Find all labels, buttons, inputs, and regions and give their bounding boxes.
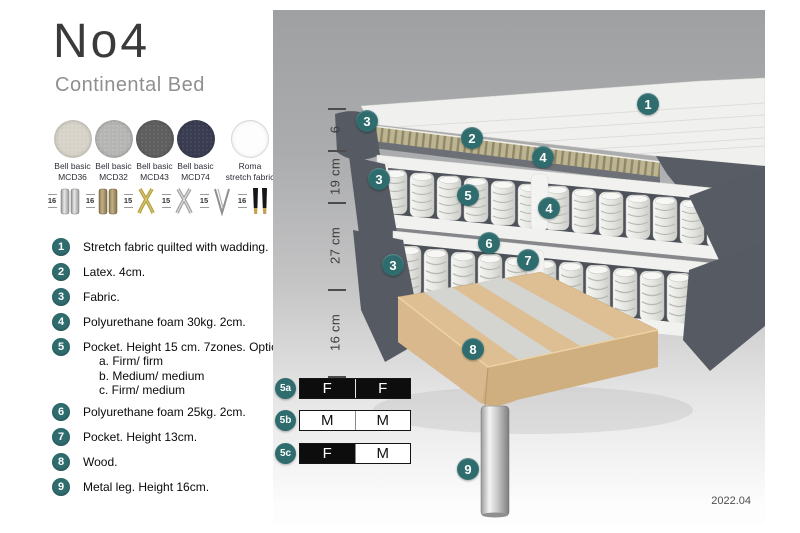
- pocket-options: a. Firm/ firm b. Medium/ medium c. Firm/…: [99, 354, 267, 398]
- list-item: 6Polyurethane foam 25kg. 2cm.: [52, 403, 267, 421]
- callout-badge: 2: [461, 127, 483, 149]
- leg-hairpin-icon: [211, 186, 233, 216]
- leg-cylinder-brass-icon: [97, 186, 119, 216]
- firmness-cell: F: [355, 379, 411, 398]
- item-text: Latex. 4cm.: [83, 263, 145, 281]
- leg-height-value: 16: [238, 197, 246, 205]
- leg-option: 16: [236, 186, 271, 216]
- swatch-code: MCD36: [58, 172, 87, 182]
- callout-badge: 3: [356, 110, 378, 132]
- fabric-swatch: Bell basicMCD36: [52, 120, 93, 182]
- item-number-badge: 6: [52, 403, 70, 421]
- callout-badge: 5: [457, 184, 479, 206]
- pocket-option: a. Firm/ firm: [99, 354, 267, 369]
- callout-badge: 4: [538, 197, 560, 219]
- page-title: No4: [53, 14, 150, 69]
- fabric-swatch-label: Bell basicMCD43: [134, 161, 175, 182]
- callout-badge: 4: [532, 146, 554, 168]
- info-column: No4 Continental Bed Bell basicMCD36 Bell…: [0, 0, 273, 533]
- swatch-code: MCD43: [140, 172, 169, 182]
- page: No4 Continental Bed Bell basicMCD36 Bell…: [0, 0, 800, 533]
- list-item: 1Stretch fabric quilted with wadding.: [52, 238, 267, 256]
- callout-badge: 3: [368, 168, 390, 190]
- leg-option: 16: [46, 186, 81, 216]
- firmness-cell: M: [355, 444, 411, 463]
- item-number-badge: 1: [52, 238, 70, 256]
- fabric-swatch: Romastretch fabric: [222, 120, 278, 182]
- swatch-code: MCD74: [181, 172, 210, 182]
- leg-option: 16: [84, 186, 119, 216]
- leg-height-value: 15: [200, 197, 208, 205]
- item-number-badge: 4: [52, 313, 70, 331]
- item-text: Polyurethane foam 25kg. 2cm.: [83, 403, 246, 421]
- leg-option: 15: [122, 186, 157, 216]
- diagram-panel: 6 19 cm 27 cm 16 cm 1 2 3 4 3 5 4 6 7 3 …: [273, 10, 765, 523]
- fabric-swatch-circle: [54, 120, 92, 158]
- measurement-label: 6: [328, 108, 343, 152]
- item-text: Pocket. Height 13cm.: [83, 428, 197, 446]
- fabric-swatch-label: Bell basicMCD32: [93, 161, 134, 182]
- fabric-swatch-circle: [95, 120, 133, 158]
- leg-height: 15: [160, 192, 172, 210]
- fabric-swatch: Bell basicMCD74: [175, 120, 216, 182]
- callout-badge: 6: [478, 232, 500, 254]
- list-item: 7Pocket. Height 13cm.: [52, 428, 267, 446]
- firmness-row: 5b M M: [275, 409, 411, 431]
- swatch-code: MCD32: [99, 172, 128, 182]
- callout-badge: 7: [517, 249, 539, 271]
- firmness-cell: M: [300, 411, 355, 430]
- measurement-tick: [328, 202, 346, 204]
- leg-black-gold-icon: [249, 186, 271, 216]
- list-item: 8Wood.: [52, 453, 267, 471]
- firmness-row-badge: 5a: [275, 378, 296, 399]
- callout-badge: 1: [637, 93, 659, 115]
- item-text: Wood.: [83, 453, 117, 471]
- fabric-swatch-label: Bell basicMCD74: [175, 161, 216, 182]
- fabric-swatch: Bell basicMCD43: [134, 120, 175, 182]
- firmness-bar: M M: [299, 410, 411, 431]
- page-subtitle: Continental Bed: [55, 74, 205, 97]
- firmness-bar: F F: [299, 378, 411, 399]
- leg-height-value: 15: [124, 197, 132, 205]
- item-text: Stretch fabric quilted with wadding.: [83, 238, 268, 256]
- firmness-row: 5a F F: [275, 377, 411, 399]
- firmness-row-badge: 5b: [275, 410, 296, 431]
- fabric-swatch-circle: [136, 120, 174, 158]
- leg-height: 16: [236, 192, 248, 210]
- item-number-badge: 3: [52, 288, 70, 306]
- list-item: 9Metal leg. Height 16cm.: [52, 478, 267, 496]
- leg-cross-gold-icon: [135, 186, 157, 216]
- fabric-swatches: Bell basicMCD36 Bell basicMCD32 Bell bas…: [52, 120, 278, 182]
- swatch-code: stretch fabric: [226, 172, 275, 182]
- item-number-badge: 7: [52, 428, 70, 446]
- item-text: Fabric.: [83, 288, 120, 306]
- fabric-swatch-circle: [231, 120, 269, 158]
- list-item: 3Fabric.: [52, 288, 267, 306]
- swatch-name: Bell basic: [95, 161, 131, 171]
- item-number-badge: 2: [52, 263, 70, 281]
- fabric-swatch-circle: [177, 120, 215, 158]
- leg-options: 16 16 15: [46, 186, 274, 216]
- parts-list: 1Stretch fabric quilted with wadding. 2L…: [52, 238, 267, 503]
- item-number-badge: 5: [52, 338, 70, 356]
- firmness-row-badge: 5c: [275, 443, 296, 464]
- callout-badge: 3: [382, 254, 404, 276]
- measurement-tick: [328, 289, 346, 291]
- leg-height: 16: [46, 192, 58, 210]
- swatch-name: Bell basic: [54, 161, 90, 171]
- fabric-swatch-label: Romastretch fabric: [222, 161, 278, 182]
- item-text: Polyurethane foam 30kg. 2cm.: [83, 313, 246, 331]
- callout-badge: 9: [457, 458, 479, 480]
- firmness-cell: F: [300, 379, 355, 398]
- item-number-badge: 9: [52, 478, 70, 496]
- pocket-option: b. Medium/ medium: [99, 369, 267, 384]
- measurement-label: 16 cm: [328, 311, 343, 355]
- fabric-swatch-label: Bell basicMCD36: [52, 161, 93, 182]
- swatch-name: Bell basic: [177, 161, 213, 171]
- callout-badge: 8: [462, 338, 484, 360]
- item-text: Metal leg. Height 16cm.: [83, 478, 209, 496]
- metal-leg: [481, 406, 509, 518]
- measurement-label: 27 cm: [328, 224, 343, 268]
- leg-cylinder-silver-icon: [59, 186, 81, 216]
- leg-height-value: 16: [86, 197, 94, 205]
- firmness-cell: F: [300, 444, 355, 463]
- leg-height: 15: [198, 192, 210, 210]
- list-item: 4Polyurethane foam 30kg. 2cm.: [52, 313, 267, 331]
- pocket-option: c. Firm/ medium: [99, 383, 267, 398]
- item-number-badge: 8: [52, 453, 70, 471]
- leg-cross-silver-icon: [173, 186, 195, 216]
- measurement-label: 19 cm: [328, 155, 343, 199]
- firmness-row: 5c F M: [275, 442, 411, 464]
- swatch-name: Bell basic: [136, 161, 172, 171]
- firmness-bar: F M: [299, 443, 411, 464]
- list-item: 2Latex. 4cm.: [52, 263, 267, 281]
- swatch-name: Roma: [239, 161, 262, 171]
- leg-option: 15: [198, 186, 233, 216]
- leg-option: 15: [160, 186, 195, 216]
- firmness-cell: M: [355, 411, 411, 430]
- leg-height-value: 16: [48, 197, 56, 205]
- version-text: 2022.04: [711, 495, 751, 507]
- leg-height-value: 15: [162, 197, 170, 205]
- leg-height: 16: [84, 192, 96, 210]
- fabric-swatch: Bell basicMCD32: [93, 120, 134, 182]
- leg-height: 15: [122, 192, 134, 210]
